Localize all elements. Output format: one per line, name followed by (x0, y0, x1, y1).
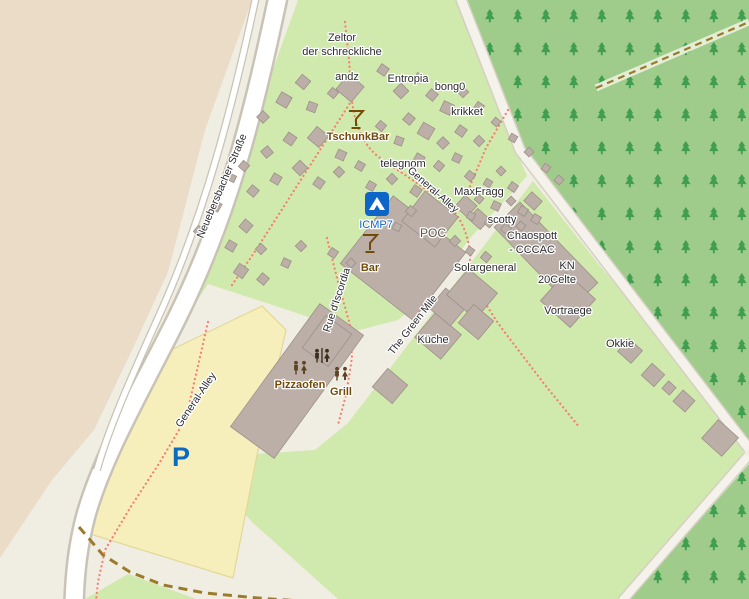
label-kn: KN (559, 260, 574, 272)
map-viewport[interactable]: P Zeltorder schrecklicheandzEntropiabong… (0, 0, 749, 599)
parking-letter: P (172, 442, 190, 472)
label-okkie: Okkie (606, 338, 634, 350)
label-poc: POC (420, 226, 446, 240)
label-entropia: Entropia (388, 73, 430, 85)
label-grill: Grill (330, 386, 352, 398)
label-chaospott: Chaospott (507, 230, 557, 242)
label-20celte: 20Celte (538, 274, 576, 286)
person-head (335, 367, 339, 371)
label-zeltor-2: der schreckliche (302, 46, 381, 58)
label-andz: andz (335, 71, 359, 83)
label-zeltor-1: Zeltor (328, 32, 356, 44)
label-kueche: Küche (417, 334, 448, 346)
label-maxfragg: MaxFragg (454, 186, 504, 198)
person-head (294, 361, 298, 365)
label-pizzaofen: Pizzaofen (275, 379, 326, 391)
toilets-icon (315, 348, 330, 363)
label-bar: Bar (361, 262, 380, 274)
label-krikket: krikket (451, 106, 483, 118)
person-head (315, 349, 319, 353)
openstreetmap-canvas[interactable]: P Zeltorder schrecklicheandzEntropiabong… (0, 0, 749, 599)
label-vortraege: Vortraege (544, 305, 592, 317)
parking-icon: P (172, 442, 190, 472)
label-icmp7: ICMP7 (359, 219, 393, 231)
label-solargeneral: Solargeneral (454, 262, 516, 274)
person-head (343, 367, 347, 371)
label-bong0: bong0 (435, 81, 466, 93)
icmp7-campsite-icon (365, 192, 389, 216)
label-scotty: scotty (488, 214, 517, 226)
person-head (302, 361, 306, 365)
person-head (325, 349, 329, 353)
label-tschunkbar: TschunkBar (327, 131, 390, 143)
label-cccac: - CCCAC (509, 244, 555, 256)
divider (321, 348, 322, 363)
label-telegnom: telegnom (380, 158, 425, 170)
